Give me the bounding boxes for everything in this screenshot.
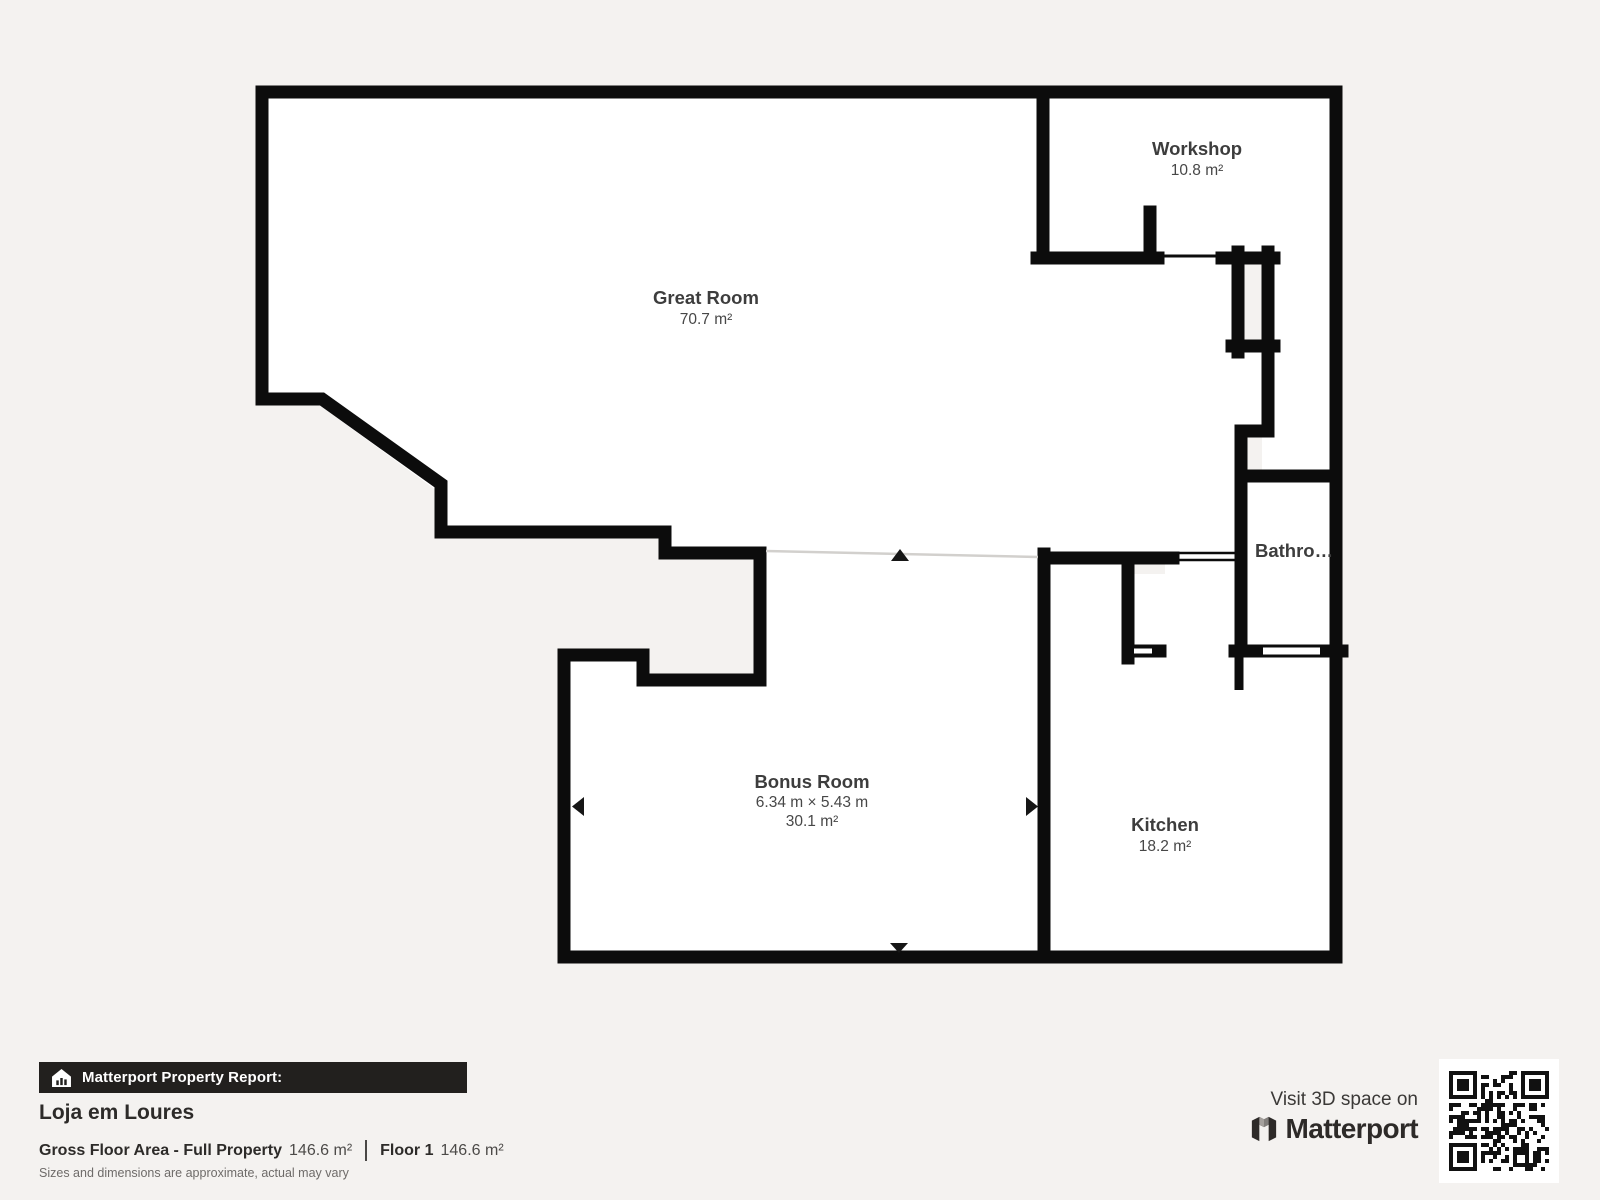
disclaimer-text: Sizes and dimensions are approximate, ac… bbox=[39, 1166, 349, 1180]
gross-floor-area-value: 146.6 m² bbox=[289, 1142, 352, 1160]
room-kitchen: Kitchen 18.2 m² bbox=[1131, 814, 1199, 855]
kitchen-closet-door-slot bbox=[1134, 649, 1152, 654]
shaft-void bbox=[1247, 437, 1262, 471]
qr-code-pattern bbox=[1449, 1071, 1549, 1171]
floor-plan: Great Room 70.7 m² Workshop 10.8 m² Bath… bbox=[0, 0, 1600, 1040]
room-bathroom: Bathro… bbox=[1255, 540, 1333, 561]
bonus-room-dimensions: 6.34 m × 5.43 m bbox=[756, 794, 868, 811]
stats-divider bbox=[365, 1140, 367, 1161]
bathroom-window bbox=[1263, 648, 1320, 655]
matterport-floor-plan-report: { "plan": { "rooms": { "great_room": { "… bbox=[0, 0, 1600, 1200]
area-stats-row: Gross Floor Area - Full Property 146.6 m… bbox=[39, 1140, 504, 1161]
qr-code bbox=[1439, 1059, 1559, 1183]
gross-floor-area-label: Gross Floor Area - Full Property bbox=[39, 1142, 282, 1160]
matterport-logo: Matterport bbox=[1250, 1114, 1418, 1144]
bathroom-label: Bathro… bbox=[1255, 540, 1333, 561]
workshop-area: 10.8 m² bbox=[1171, 162, 1224, 179]
great-room-area: 70.7 m² bbox=[680, 311, 733, 328]
workshop-label: Workshop bbox=[1152, 138, 1242, 159]
matterport-m-icon bbox=[1250, 1115, 1278, 1143]
floor-value: 146.6 m² bbox=[441, 1142, 504, 1160]
great-room-label: Great Room bbox=[653, 287, 759, 308]
bonus-room-label: Bonus Room bbox=[754, 771, 869, 792]
closet-void bbox=[1244, 262, 1262, 342]
matterport-wordmark: Matterport bbox=[1286, 1114, 1418, 1144]
report-badge-bar: Matterport Property Report: bbox=[39, 1062, 467, 1093]
bonus-room-area: 30.1 m² bbox=[786, 813, 839, 830]
visit-3d-label: Visit 3D space on bbox=[1250, 1089, 1418, 1110]
visit-3d-cta: Visit 3D space on Matterport bbox=[1250, 1089, 1418, 1144]
report-badge-label: Matterport Property Report: bbox=[82, 1069, 282, 1086]
property-name: Loja em Loures bbox=[39, 1101, 194, 1125]
kitchen-label: Kitchen bbox=[1131, 814, 1199, 835]
kitchen-area: 18.2 m² bbox=[1139, 838, 1192, 855]
floor-label: Floor 1 bbox=[380, 1142, 433, 1160]
house-chart-icon bbox=[52, 1069, 71, 1087]
